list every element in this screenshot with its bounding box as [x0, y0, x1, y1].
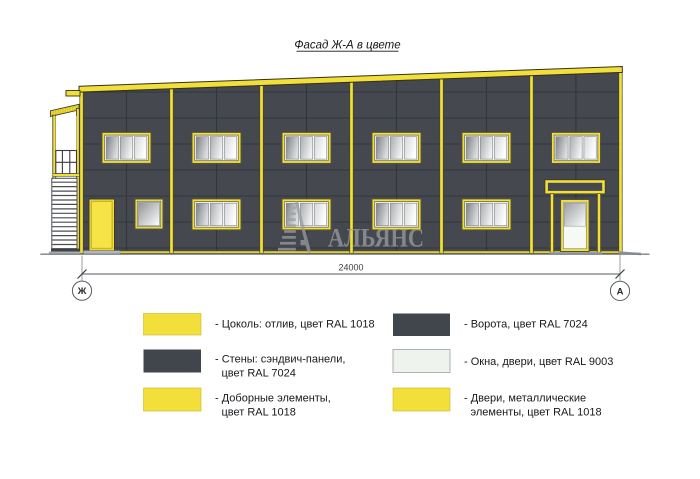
svg-text:цвет RAL 1018: цвет RAL 1018: [222, 407, 296, 419]
svg-text:- Цоколь: отлив, цвет RAL 1018: - Цоколь: отлив, цвет RAL 1018: [215, 319, 375, 331]
svg-text:- Доборные элементы,: - Доборные элементы,: [215, 393, 331, 405]
svg-text:А: А: [617, 286, 624, 297]
svg-text:- Стены: сэндвич-панели,: - Стены: сэндвич-панели,: [215, 354, 345, 366]
svg-text:Ж: Ж: [77, 286, 87, 297]
svg-text:24000: 24000: [338, 263, 363, 273]
svg-text:- Двери, металлические: - Двери, металлические: [464, 393, 586, 405]
svg-text:АЛЬЯНС: АЛЬЯНС: [328, 224, 424, 253]
svg-text:- Окна, двери, цвет RAL 9003: - Окна, двери, цвет RAL 9003: [464, 356, 613, 368]
svg-text:Фасад Ж-А в цвете: Фасад Ж-А в цвете: [294, 40, 400, 52]
svg-text:- Ворота, цвет RAL 7024: - Ворота, цвет RAL 7024: [464, 319, 588, 331]
svg-text:цвет RAL 7024: цвет RAL 7024: [222, 368, 296, 380]
svg-text:элементы, цвет RAL 1018: элементы, цвет RAL 1018: [471, 407, 602, 419]
